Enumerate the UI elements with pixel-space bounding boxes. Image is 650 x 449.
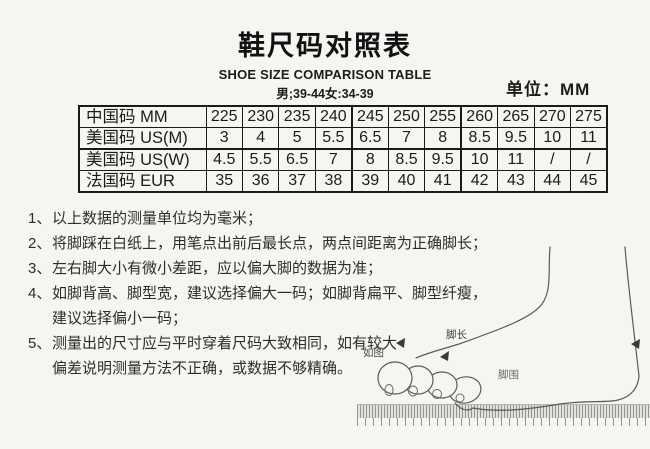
note-number: 3、 (28, 256, 52, 281)
size-cell: 45 (571, 171, 607, 193)
size-cell: 230 (242, 106, 278, 128)
size-cell: 265 (498, 106, 534, 128)
note-number: 5、 (28, 331, 52, 381)
size-cell: 260 (461, 106, 497, 128)
size-cell: 275 (571, 106, 607, 128)
note-line: 以上数据的测量单位均为毫米； (52, 206, 262, 231)
label-as-shown: 如图 (363, 346, 384, 359)
big-toe (378, 362, 412, 394)
size-cell: 6.5 (279, 149, 315, 171)
size-cell: 5.5 (242, 149, 278, 171)
size-cell: 10 (534, 128, 570, 150)
note-line: 测量出的尺寸应与平时穿着尺码大致相同，如有较大 (52, 331, 397, 356)
size-cell: 39 (352, 171, 388, 193)
size-cell: 255 (425, 106, 461, 128)
size-cell: 42 (461, 171, 497, 193)
table-row: 美国码 US(M)3455.56.5788.59.51011 (79, 128, 607, 150)
row-label: 法国码 EUR (79, 171, 206, 193)
table-row: 中国码 MM225230235240245250255260265270275 (79, 106, 607, 128)
unit-label: 单位：MM (506, 75, 590, 100)
size-cell: 240 (315, 106, 351, 128)
size-cell: 4 (242, 128, 278, 150)
note-line: 偏差说明测量方法不正确，或数据不够精确。 (52, 356, 397, 381)
size-cell: 41 (425, 171, 461, 193)
note-number: 1、 (28, 206, 52, 231)
size-table-body: 中国码 MM225230235240245250255260265270275美… (79, 106, 607, 192)
size-cell: 5 (279, 128, 315, 150)
foot-heel-outline (625, 247, 639, 376)
size-cell: / (571, 149, 607, 171)
size-cell: 9.5 (498, 128, 534, 150)
size-cell: 5.5 (315, 128, 351, 150)
foot-measurement-figure: 脚长 脚围 如图 (355, 240, 650, 449)
table-row: 美国码 US(W)4.55.56.5788.59.51011// (79, 149, 607, 171)
foot-top-outline (416, 247, 550, 358)
page-title: 鞋尺码对照表 (0, 24, 650, 63)
size-cell: 225 (206, 106, 242, 128)
arrowhead-icon (396, 338, 405, 348)
size-cell: 43 (498, 171, 534, 193)
row-label: 中国码 MM (79, 106, 206, 128)
note-number: 4、 (28, 281, 52, 331)
foot-toe-curl (455, 403, 473, 410)
size-cell: 235 (279, 106, 315, 128)
size-cell: 8.5 (461, 128, 497, 150)
size-cell: 4.5 (206, 149, 242, 171)
note-item: 1、 以上数据的测量单位均为毫米； (28, 206, 473, 231)
label-foot-girth: 脚围 (498, 368, 519, 381)
size-cell: 8 (352, 149, 388, 171)
size-cell: 10 (461, 149, 497, 171)
size-cell: 11 (498, 149, 534, 171)
label-foot-length: 脚长 (446, 328, 467, 341)
size-cell: 44 (534, 171, 570, 193)
note-number: 2、 (28, 231, 52, 256)
size-cell: 3 (206, 128, 242, 150)
size-cell: 38 (315, 171, 351, 193)
size-cell: 6.5 (352, 128, 388, 150)
size-cell: 250 (388, 106, 424, 128)
size-cell: 36 (242, 171, 278, 193)
size-cell: 8 (425, 128, 461, 150)
size-cell: 7 (388, 128, 424, 150)
size-cell: 11 (571, 128, 607, 150)
arrowhead-icon (440, 351, 449, 361)
size-cell: 9.5 (425, 149, 461, 171)
size-cell: / (534, 149, 570, 171)
foot-sole-outline (473, 376, 639, 410)
row-label: 美国码 US(W) (79, 149, 206, 171)
size-cell: 40 (388, 171, 424, 193)
row-label: 美国码 US(M) (79, 128, 206, 150)
size-cell: 7 (315, 149, 351, 171)
table-row: 法国码 EUR3536373839404142434445 (79, 171, 607, 193)
size-table: 中国码 MM225230235240245250255260265270275美… (78, 105, 608, 193)
size-cell: 35 (206, 171, 242, 193)
size-cell: 270 (534, 106, 570, 128)
note-line: 左右脚大小有微小差距，应以偏大脚的数据为准； (52, 256, 382, 281)
size-cell: 37 (279, 171, 315, 193)
size-cell: 8.5 (388, 149, 424, 171)
size-cell: 245 (352, 106, 388, 128)
